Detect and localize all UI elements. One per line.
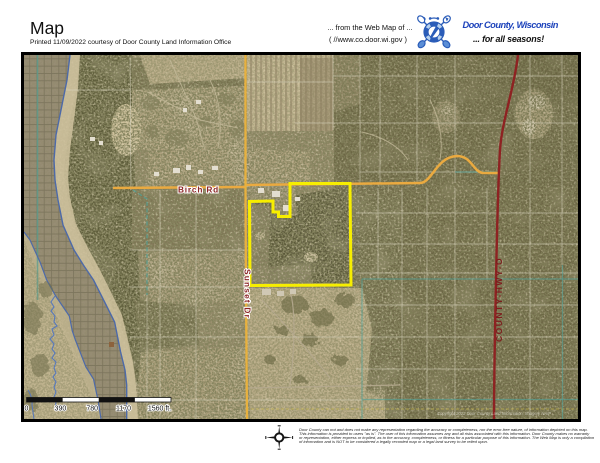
svg-text:780: 780 <box>86 406 98 413</box>
svg-text:Birch Rd: Birch Rd <box>178 185 219 195</box>
svg-text:1560 ft.: 1560 ft. <box>148 406 171 413</box>
svg-text:Copyright 2022 Door County Lan: Copyright 2022 Door County Land Informat… <box>437 411 551 416</box>
svg-text:COUNTY-HWY-O: COUNTY-HWY-O <box>494 257 504 342</box>
svg-text:0: 0 <box>25 406 29 413</box>
svg-text:390: 390 <box>55 406 67 413</box>
svg-text:1170: 1170 <box>116 406 131 413</box>
svg-text:Sunset Dr: Sunset Dr <box>243 269 253 319</box>
